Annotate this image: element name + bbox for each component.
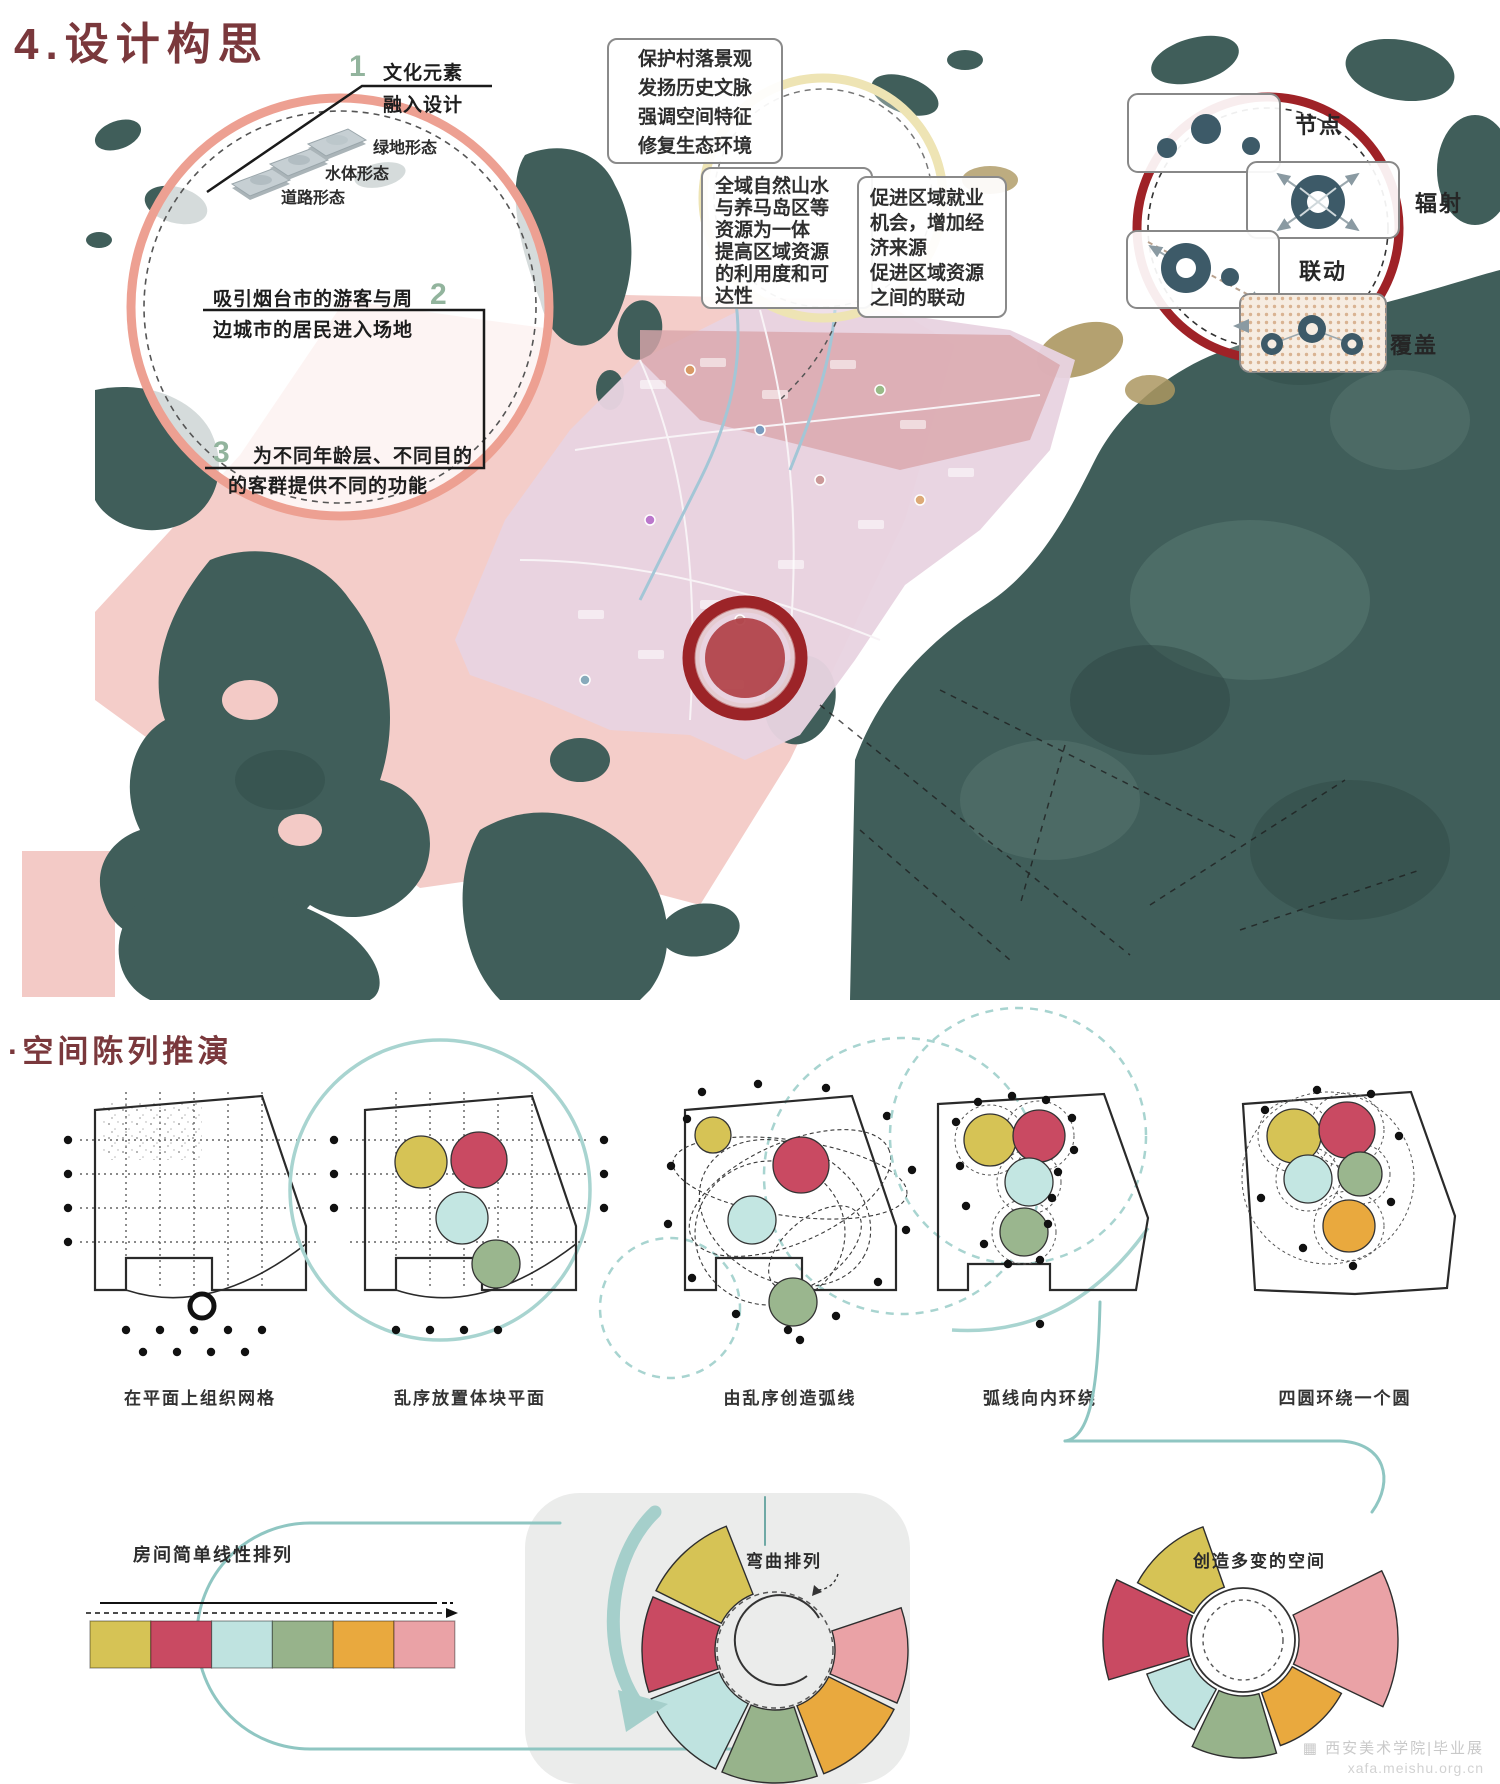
step-2-diagram-blocks	[320, 1078, 620, 1378]
section2-title: ·空间陈列推演	[8, 1026, 232, 1071]
program-bubbles	[964, 1110, 1065, 1256]
concept-point1-line1: 文化元素	[383, 58, 463, 85]
arrangement-diagrams	[0, 1400, 1500, 1784]
page-title: 4.设计构思	[14, 8, 269, 72]
goal-box-economy: 促进区域就业 机会，增加经 济来源 促进区域资源 之间的联动	[857, 176, 1007, 318]
strategy-label-radiate: 辐射	[1415, 186, 1463, 218]
focus-ring	[689, 602, 801, 714]
concept-point2-number: 2	[430, 278, 447, 312]
linear-strip-rails	[86, 1603, 458, 1618]
linear-room-blocks	[90, 1621, 455, 1668]
linear-arrangement-label: 房间简单线性排列	[133, 1541, 293, 1567]
grid-anchor-ring	[190, 1294, 214, 1318]
design-concept-poster: 4.设计构思 1 文化元素 融入设计 绿地形态 水体形态 道路形态 吸引烟台市的…	[0, 0, 1500, 1784]
tile-label-green: 绿地形态	[373, 134, 437, 158]
concept-point3-number: 3	[213, 436, 230, 470]
step-5-diagram-cluster	[1195, 1078, 1495, 1378]
concept-point3-line2: 的客群提供不同的功能	[228, 471, 428, 498]
program-bubbles	[395, 1132, 520, 1288]
goal-box-resources: 全域自然山水 与养马岛区等 资源为一体 提高区域资源 的利用度和可 达性	[701, 167, 873, 309]
goal-box-heritage: 保护村落景观 发扬历史文脉 强调空间特征 修复生态环境	[607, 38, 783, 164]
tile-label-road: 道路形态	[281, 184, 345, 208]
school-logo-icon: ▦	[1303, 1740, 1325, 1757]
concept-point3-line1: 为不同年龄层、不同目的	[253, 441, 473, 468]
program-bubbles	[695, 1117, 829, 1326]
strategy-label-linkage: 联动	[1299, 254, 1347, 286]
concept-point2-line1: 吸引烟台市的游客与周	[213, 284, 413, 311]
concept-point2-line2: 边城市的居民进入场地	[213, 315, 413, 342]
strategy-label-node: 节点	[1295, 108, 1343, 140]
varied-arrangement-label: 创造多变的空间	[1193, 1547, 1326, 1572]
strategy-label-coverage: 覆盖	[1390, 328, 1438, 360]
concept-point1-number: 1	[349, 50, 366, 84]
program-bubbles	[1267, 1102, 1382, 1252]
curved-arrangement-label: 弯曲排列	[746, 1547, 822, 1572]
watermark: ▦ 西安美术学院|毕业展 xafa.meishu.org.cn	[1303, 1739, 1484, 1778]
tile-label-water: 水体形态	[325, 160, 389, 184]
concept-point1-line2: 融入设计	[383, 90, 463, 117]
step-4-diagram-spiral	[890, 1078, 1190, 1378]
